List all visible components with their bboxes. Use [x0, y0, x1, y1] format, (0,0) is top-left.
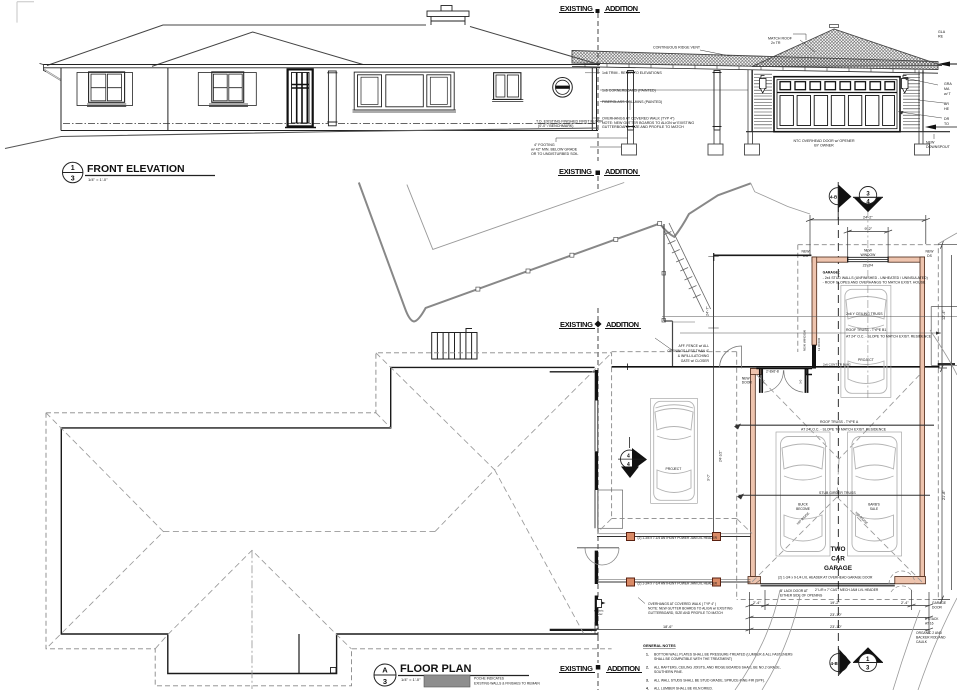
svg-text:12 DOOR: 12 DOOR: [817, 337, 821, 351]
svg-text:CAR: CAR: [831, 556, 845, 563]
svg-text:23'x9'4: 23'x9'4: [863, 264, 874, 268]
svg-text:DOOR: DOOR: [742, 381, 753, 385]
svg-text:& INFILL/LATCHING: & INFILL/LATCHING: [678, 354, 710, 358]
svg-text:NEW: NEW: [802, 250, 811, 254]
svg-text:ALL WALL STUDS SHALL BE STUD G: ALL WALL STUDS SHALL BE STUD GRADE, SPRU…: [654, 679, 765, 683]
svg-text:STUB GIRDER TRUSS: STUB GIRDER TRUSS: [819, 491, 856, 495]
svg-text:T.O. EXISTING FINISHED FIRST F: T.O. EXISTING FINISHED FIRST FLOOR: [536, 120, 603, 124]
svg-text:23'-10": 23'-10": [830, 613, 842, 617]
svg-text:4: 4: [627, 454, 630, 460]
svg-text:3.: 3.: [646, 679, 649, 683]
svg-text:ALL LUMBER SHALL BE KILN DRIED: ALL LUMBER SHALL BE KILN DRIED.: [654, 687, 713, 690]
svg-text:DS: DS: [927, 254, 932, 258]
svg-text:NTC OVERHEAD DOOR w/ OPENER: NTC OVERHEAD DOOR w/ OPENER: [793, 139, 855, 143]
svg-text:- 2x4 STUD WALLS (UNFINISHED -: - 2x4 STUD WALLS (UNFINISHED - UNHEATED …: [823, 276, 928, 280]
svg-text:BUICK: BUICK: [798, 503, 809, 507]
svg-text:3'-0": 3'-0": [707, 473, 711, 481]
svg-text:GUTTERBOARD, SIZE AND PROFILE: GUTTERBOARD, SIZE AND PROFILE TO MATCH: [602, 125, 684, 129]
svg-text:4.: 4.: [646, 687, 649, 690]
svg-text:GATE w/ CLOSER: GATE w/ CLOSER: [681, 359, 710, 363]
svg-text:GARAGE: GARAGE: [932, 601, 947, 605]
svg-text:POCHE INDICATES: POCHE INDICATES: [474, 677, 505, 681]
svg-text:EXISTING WALLS & FINISHES TO R: EXISTING WALLS & FINISHES TO REMAIN: [474, 682, 540, 686]
svg-text:ORGANIC 2 AND: ORGANIC 2 AND: [916, 631, 942, 635]
svg-text:CAULK: CAULK: [916, 640, 928, 644]
svg-text:(2) 1-3/4 x 7-1/4 ANTHONY POWE: (2) 1-3/4 x 7-1/4 ANTHONY POWER JAM LVL …: [638, 536, 718, 540]
svg-text:OPENINGS LESS THAN 4": OPENINGS LESS THAN 4": [667, 349, 709, 353]
svg-text:DOOR: DOOR: [932, 606, 943, 610]
svg-text:GLA: GLA: [938, 30, 946, 34]
svg-text:BY OWNER: BY OWNER: [814, 144, 834, 148]
svg-text:B' LACK DOOR AT: B' LACK DOOR AT: [780, 589, 808, 593]
svg-text:1/4" = 1'-0": 1/4" = 1'-0": [401, 677, 421, 682]
svg-text:NEW: NEW: [926, 141, 935, 145]
svg-text:NEW: NEW: [926, 250, 935, 254]
svg-text:NEW: NEW: [864, 249, 873, 253]
svg-text:PROJECT: PROJECT: [666, 467, 682, 471]
svg-text:AT 24" O.C. - SLOPE TO MATCH E: AT 24" O.C. - SLOPE TO MATCH EXIST. RESI…: [846, 335, 932, 339]
svg-text:(2) 1-3/4 x 9-1/4 LVL HEADER A: (2) 1-3/4 x 9-1/4 LVL HEADER AT OVERHEAD…: [778, 576, 873, 580]
svg-text:1x6 CORNERBOARD (PAINTED): 1x6 CORNERBOARD (PAINTED): [602, 89, 656, 93]
svg-text:FIBERGLASS COLUMNS (PAINTED): FIBERGLASS COLUMNS (PAINTED): [602, 100, 662, 104]
svg-text:ADDITION: ADDITION: [606, 320, 639, 329]
svg-text:GUTTERBOARD, SIZE AND PROFILE: GUTTERBOARD, SIZE AND PROFILE TO MATCH: [648, 611, 724, 615]
svg-text:WINDOW: WINDOW: [860, 253, 876, 257]
svg-text:GRA: GRA: [944, 82, 952, 86]
svg-text:ADDITION: ADDITION: [605, 167, 638, 176]
svg-text:TWO: TWO: [831, 546, 846, 553]
svg-text:(2) 1-3/4 x 7-1/4 ANTHONY POWE: (2) 1-3/4 x 7-1/4 ANTHONY POWER JAM LVL …: [638, 581, 718, 585]
svg-text:AT 16: AT 16: [925, 622, 934, 626]
svg-text:A: A: [382, 666, 388, 675]
svg-text:EITHER SIDE OF OPENING: EITHER SIDE OF OPENING: [780, 594, 823, 598]
svg-text:HE: HE: [944, 107, 950, 111]
svg-text:PROJECT: PROJECT: [858, 358, 874, 362]
svg-text:ALL RAFTERS, CEILING JOISTS, A: ALL RAFTERS, CEILING JOISTS, AND RIDGE B…: [654, 666, 781, 670]
svg-text:NEW WINDOW: NEW WINDOW: [803, 330, 807, 351]
svg-text:2x6 CONT TR BLKG: 2x6 CONT TR BLKG: [823, 363, 851, 367]
svg-text:GENERAL NOTES: GENERAL NOTES: [643, 644, 676, 648]
svg-text:(0'-0" / BENCHMARK): (0'-0" / BENCHMARK): [538, 124, 574, 128]
svg-text:meter: meter: [595, 612, 603, 616]
svg-text:BARB'S: BARB'S: [868, 503, 879, 507]
svg-text:4-B: 4-B: [831, 661, 839, 666]
svg-text:ADDITION: ADDITION: [607, 664, 640, 673]
svg-text:4: 4: [627, 462, 630, 468]
svg-text:1 STACK: 1 STACK: [925, 617, 939, 621]
svg-text:DR: DR: [944, 117, 950, 121]
svg-text:EXISTING: EXISTING: [559, 167, 592, 176]
svg-text:18'-6": 18'-6": [663, 625, 673, 629]
svg-text:BECOME: BECOME: [796, 507, 810, 511]
svg-text:1: 1: [71, 165, 75, 172]
svg-text:3-0: 3-0: [799, 379, 803, 384]
svg-text:GARAGE: GARAGE: [824, 565, 853, 572]
svg-text:DS: DS: [803, 254, 808, 258]
svg-text:BOTTOM WALL PLATES SHALL BE PR: BOTTOM WALL PLATES SHALL BE PRESSURE-TRE…: [654, 653, 793, 657]
svg-text:- ROOF SLOPES AND OVERHANGS TO: - ROOF SLOPES AND OVERHANGS TO MATCH EXI…: [823, 281, 926, 285]
svg-text:3: 3: [71, 176, 75, 183]
svg-text:SALE: SALE: [870, 507, 878, 511]
svg-text:4" FOOTING: 4" FOOTING: [534, 143, 555, 147]
svg-text:1x6 TRIM - REFER TO ELEVATIONS: 1x6 TRIM - REFER TO ELEVATIONS: [602, 71, 662, 75]
svg-text:CONTINUOUS RIDGE VENT: CONTINUOUS RIDGE VENT: [653, 46, 701, 50]
svg-text:EXISTING: EXISTING: [560, 4, 593, 13]
svg-text:BR: BR: [944, 102, 949, 106]
svg-text:RE: RE: [938, 35, 944, 39]
svg-text:EXISTING: EXISTING: [560, 664, 593, 673]
svg-text:24'-7": 24'-7": [706, 306, 710, 316]
svg-text:2x6 Y CEILING TRUSS: 2x6 Y CEILING TRUSS: [846, 312, 883, 316]
svg-text:MA: MA: [944, 87, 950, 91]
svg-text:21'-8": 21'-8": [942, 490, 946, 500]
svg-text:9'-2": 9'-2": [865, 227, 873, 231]
svg-text:2'-8x6'-8: 2'-8x6'-8: [766, 370, 779, 374]
svg-text:12'-4": 12'-4": [942, 310, 946, 320]
svg-text:1.: 1.: [646, 653, 649, 657]
svg-text:MATCH ROOF: MATCH ROOF: [768, 37, 793, 41]
svg-text:AT 24" O.C. - SLOPE TO MATCH E: AT 24" O.C. - SLOPE TO MATCH EXIST. RESI…: [801, 428, 887, 432]
svg-text:SHALL BE COMPATIBLE WITH THE T: SHALL BE COMPATIBLE WITH THE TREATMENT): [654, 657, 732, 661]
svg-text:GARAGE :: GARAGE :: [823, 271, 841, 275]
svg-text:FLOOR PLAN: FLOOR PLAN: [400, 663, 472, 675]
svg-text:24'-1/2": 24'-1/2": [719, 450, 723, 462]
svg-text:ADDITION: ADDITION: [605, 4, 638, 13]
svg-text:NOTE: NEW GUTTER BOARDS TO ALI: NOTE: NEW GUTTER BOARDS TO ALIGN w/ EXIS…: [648, 607, 733, 611]
svg-text:OR TO UNDISTURBED SOIL: OR TO UNDISTURBED SOIL: [531, 152, 578, 156]
svg-text:w/ T: w/ T: [944, 92, 952, 96]
svg-text:23'-10": 23'-10": [830, 625, 842, 629]
svg-text:BACKER ROD AND: BACKER ROD AND: [916, 636, 946, 640]
svg-text:2.: 2.: [646, 666, 649, 670]
svg-text:EXISTING: EXISTING: [560, 320, 593, 329]
svg-text:24'-2": 24'-2": [863, 215, 873, 219]
svg-text:OVERHANGS AT COVERED WALK ( TY: OVERHANGS AT COVERED WALK ( TYP 4" ): [648, 602, 716, 606]
svg-text:AFF. FENCE w/ ALL: AFF. FENCE w/ ALL: [678, 344, 709, 348]
svg-text:SOUTHERN PINE.: SOUTHERN PINE.: [654, 670, 683, 674]
svg-text:2x TR: 2x TR: [771, 41, 781, 45]
svg-text:4-B: 4-B: [830, 195, 838, 200]
svg-text:1/4" = 1'-0": 1/4" = 1'-0": [88, 177, 108, 182]
svg-text:2' L/R x 7' CAST MECH JAM LVL: 2' L/R x 7' CAST MECH JAM LVL HEADER: [815, 588, 879, 592]
svg-text:19'-2": 19'-2": [830, 601, 840, 605]
svg-text:ROOF TRUSS - TYPE A: ROOF TRUSS - TYPE A: [820, 420, 859, 424]
svg-text:FRONT ELEVATION: FRONT ELEVATION: [87, 163, 185, 175]
svg-text:w/ 42" MIN. BELOW GRADE: w/ 42" MIN. BELOW GRADE: [531, 148, 578, 152]
svg-text:DOWNSPOUT: DOWNSPOUT: [926, 145, 951, 149]
svg-text:TO: TO: [944, 122, 949, 126]
svg-text:3: 3: [383, 677, 387, 686]
svg-text:2'-4": 2'-4": [753, 601, 761, 605]
svg-text:ROOF TRUSS - TYPE B1: ROOF TRUSS - TYPE B1: [846, 328, 886, 332]
svg-text:2'-4": 2'-4": [901, 601, 909, 605]
